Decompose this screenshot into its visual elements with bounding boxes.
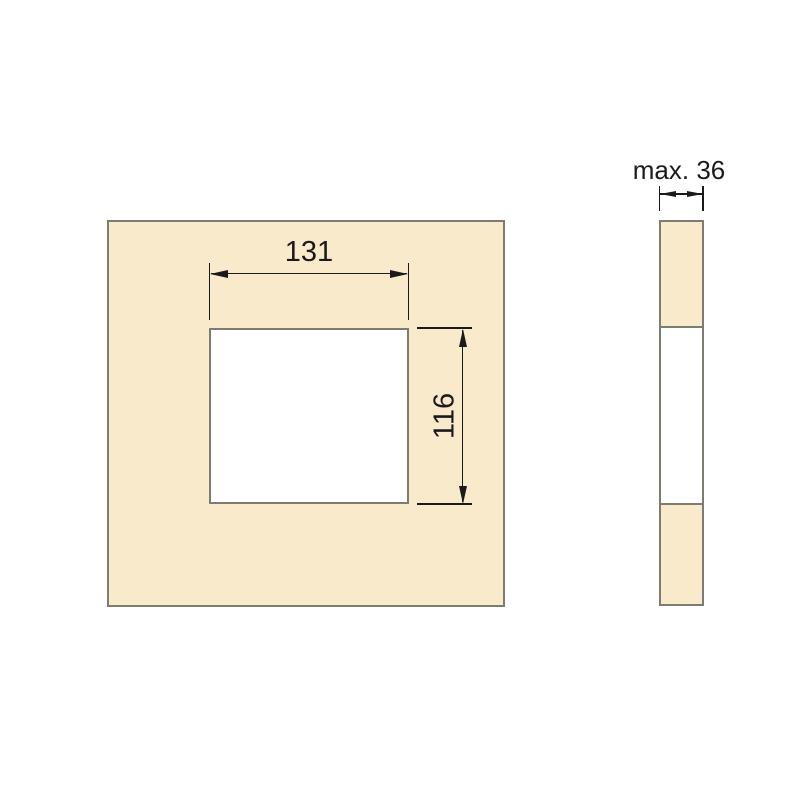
- width-arrowhead-left: [210, 270, 228, 278]
- width-dimension-label: 131: [209, 238, 409, 267]
- thickness-dimension-label: max. 36: [633, 157, 726, 183]
- side-view-profile: [659, 220, 704, 606]
- width-dimension-line: [211, 273, 407, 275]
- technical-drawing-canvas: 131 116 max. 36: [0, 0, 800, 800]
- side-view-band-middle: [661, 328, 702, 505]
- height-arrowhead-top: [459, 329, 467, 347]
- thickness-arrowhead-left: [660, 191, 676, 197]
- front-view-cutout: [209, 328, 409, 504]
- height-dimension-label: 116: [431, 393, 460, 439]
- side-view-band-bottom: [661, 505, 702, 604]
- width-arrowhead-right: [390, 270, 408, 278]
- height-arrowhead-bottom: [459, 486, 467, 504]
- thickness-arrowhead-right: [687, 191, 703, 197]
- height-dimension-line: [462, 330, 464, 502]
- side-view-band-top: [661, 222, 702, 328]
